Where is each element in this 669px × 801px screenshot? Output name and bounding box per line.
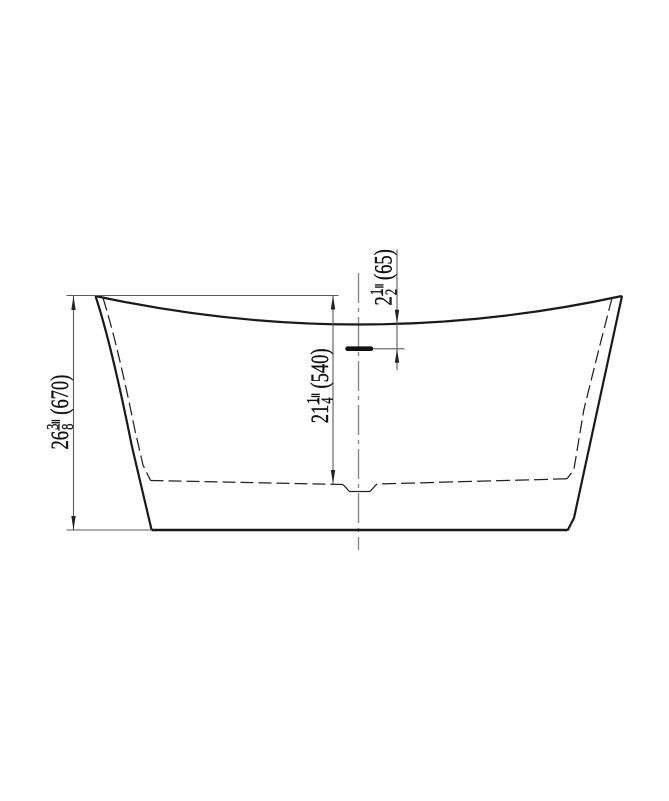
svg-text:(65): (65) bbox=[369, 249, 397, 280]
svg-text:8: 8 bbox=[59, 424, 77, 430]
svg-text:4: 4 bbox=[319, 397, 337, 404]
svg-text:26: 26 bbox=[45, 431, 73, 450]
svg-text:(540): (540) bbox=[305, 348, 333, 388]
svg-text:(670): (670) bbox=[45, 375, 73, 415]
svg-text:2: 2 bbox=[369, 296, 397, 305]
svg-text:21: 21 bbox=[305, 405, 333, 423]
svg-text:2: 2 bbox=[383, 289, 401, 295]
